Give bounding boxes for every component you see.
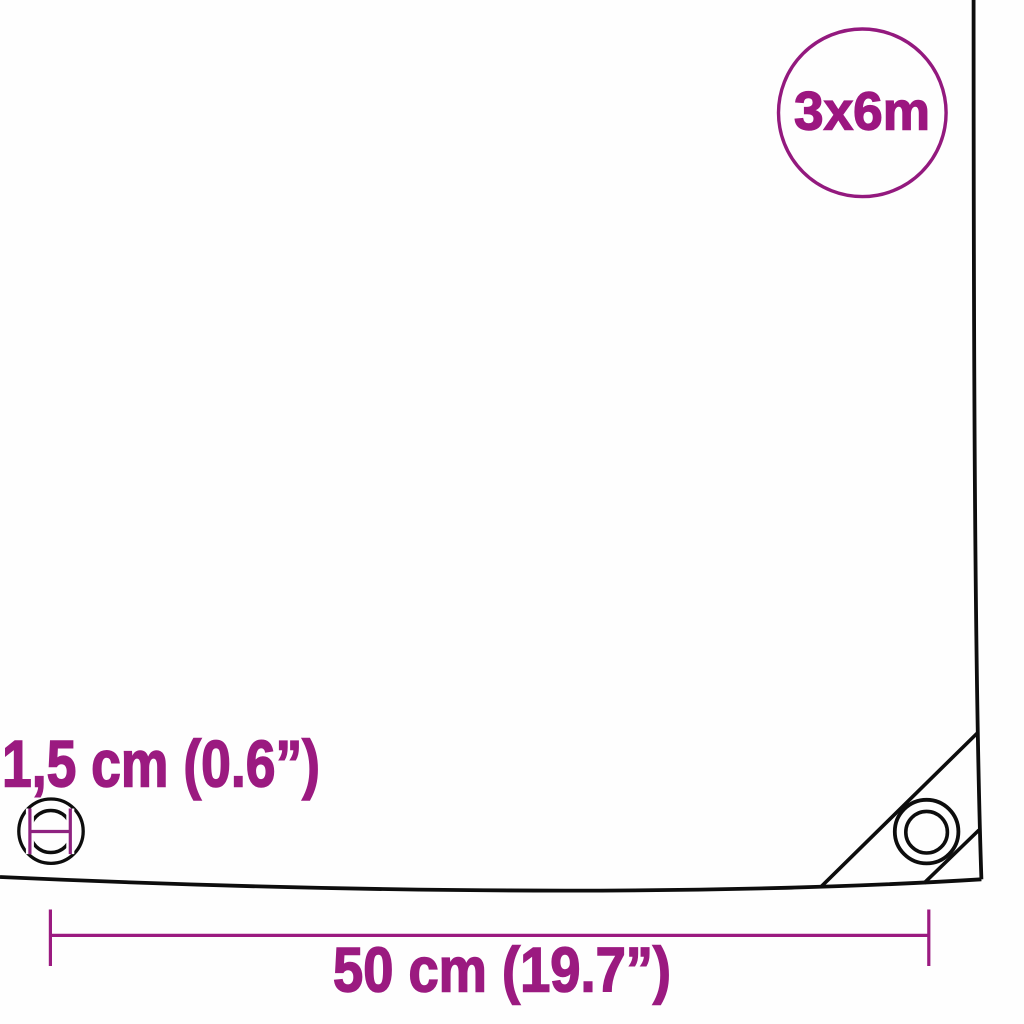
svg-text:1,5 cm (0.6”): 1,5 cm (0.6”) [2,727,320,801]
svg-text:50 cm (19.7”): 50 cm (19.7”) [333,936,671,1006]
svg-text:3x6m: 3x6m [794,82,930,142]
